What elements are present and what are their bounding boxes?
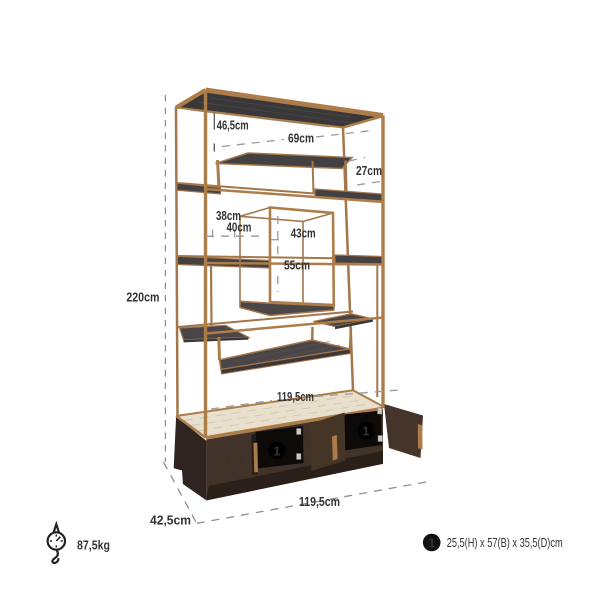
svg-text:119,5cm: 119,5cm (277, 389, 314, 404)
svg-text:119,5cm: 119,5cm (299, 494, 340, 509)
svg-text:1: 1 (428, 536, 435, 550)
svg-text:43cm: 43cm (291, 225, 316, 240)
svg-text:25,5(H) x 57(B) x 35,5(D)cm: 25,5(H) x 57(B) x 35,5(D)cm (447, 536, 563, 550)
svg-text:42,5cm: 42,5cm (150, 513, 191, 528)
svg-text:40cm: 40cm (227, 220, 252, 235)
svg-text:87,5kg: 87,5kg (77, 537, 110, 552)
svg-text:55cm: 55cm (284, 258, 310, 273)
svg-text:27cm: 27cm (356, 163, 382, 178)
svg-text:1: 1 (274, 444, 281, 458)
svg-text:46,5cm: 46,5cm (217, 117, 249, 132)
svg-text:220cm: 220cm (126, 290, 159, 305)
svg-text:1: 1 (363, 425, 370, 439)
svg-text:69cm: 69cm (288, 131, 314, 146)
